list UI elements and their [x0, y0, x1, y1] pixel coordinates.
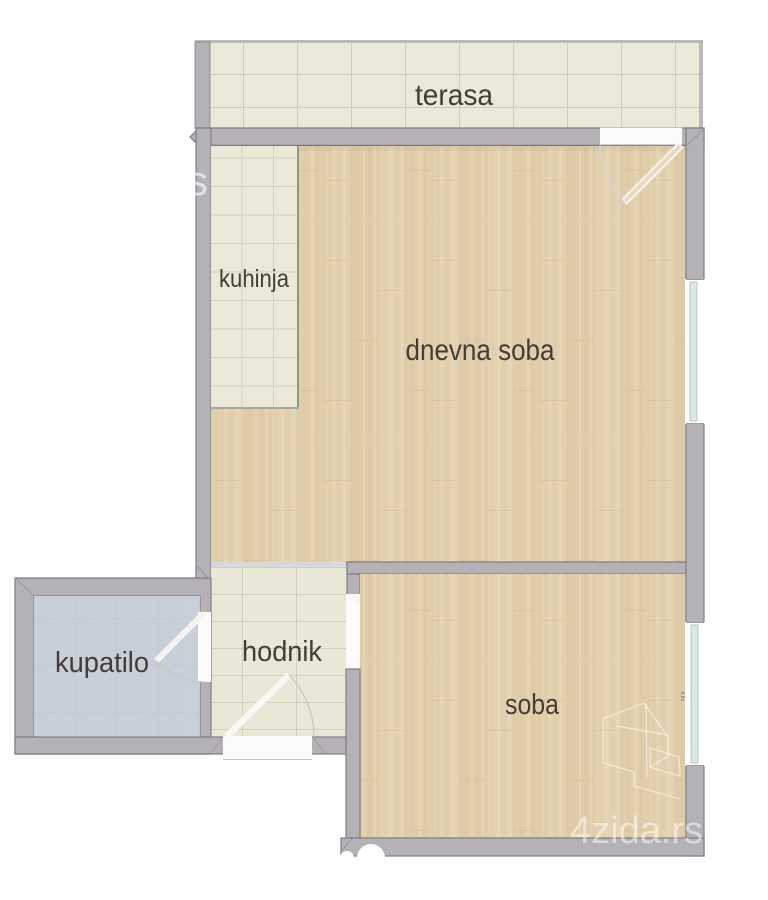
svg-text:soba: soba: [505, 689, 560, 721]
svg-text:kupatilo: kupatilo: [55, 647, 149, 679]
svg-text:kuhinja: kuhinja: [219, 265, 289, 293]
svg-text:hodnik: hodnik: [242, 636, 322, 668]
svg-text:dnevna soba: dnevna soba: [406, 334, 555, 367]
svg-text:4zida.rs: 4zida.rs: [61, 157, 208, 204]
svg-text:terasa: terasa: [415, 79, 493, 112]
svg-text:4zida.rs: 4zida.rs: [570, 810, 703, 852]
